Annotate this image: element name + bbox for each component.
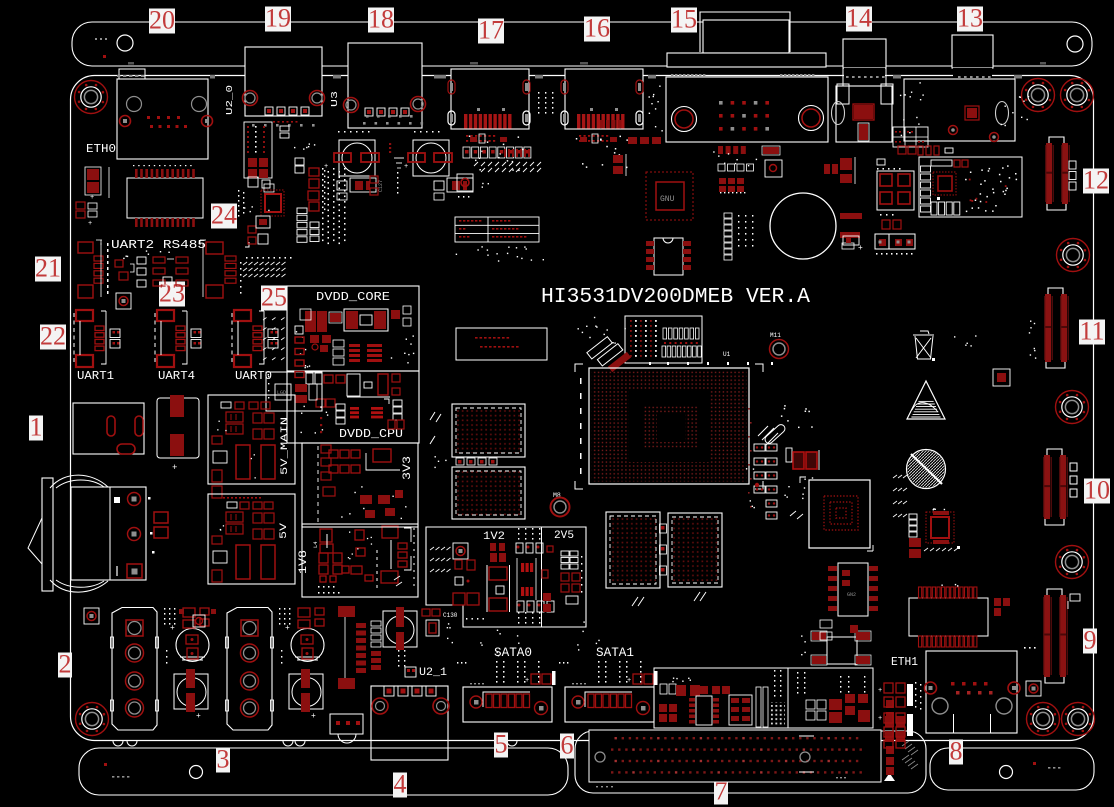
svg-text:3V3: 3V3 xyxy=(402,456,414,480)
svg-text:5V: 5V xyxy=(278,522,290,539)
svg-text:16: 16 xyxy=(584,14,610,43)
svg-text:+: + xyxy=(172,463,177,473)
svg-text:SATA1: SATA1 xyxy=(596,646,634,660)
svg-text:C127: C127 xyxy=(378,180,384,192)
svg-text:U1: U1 xyxy=(723,351,731,358)
svg-text:13: 13 xyxy=(957,4,983,33)
svg-text:+: + xyxy=(88,220,92,228)
svg-text:GN2: GN2 xyxy=(847,592,856,598)
svg-text:1V2: 1V2 xyxy=(483,531,505,543)
svg-text:+: + xyxy=(627,677,631,685)
svg-text:U2_0: U2_0 xyxy=(224,85,235,115)
svg-text:+: + xyxy=(525,677,529,685)
svg-text:ETH0: ETH0 xyxy=(86,142,116,156)
svg-text:UART4: UART4 xyxy=(158,369,195,383)
svg-text:ETH1: ETH1 xyxy=(891,655,918,669)
svg-text:+: + xyxy=(878,687,882,695)
svg-text:1V8: 1V8 xyxy=(298,550,310,574)
svg-text:2V5: 2V5 xyxy=(554,530,574,542)
svg-text:C130: C130 xyxy=(443,612,458,619)
svg-text:22: 22 xyxy=(40,322,66,351)
svg-text:3: 3 xyxy=(217,745,230,774)
svg-text:12: 12 xyxy=(1083,166,1109,195)
svg-text:21: 21 xyxy=(35,254,61,283)
svg-text:+: + xyxy=(285,624,290,633)
svg-text:20: 20 xyxy=(149,6,175,35)
svg-text:19: 19 xyxy=(265,4,291,33)
svg-text:6: 6 xyxy=(561,731,574,760)
svg-text:10: 10 xyxy=(1084,476,1110,505)
svg-text:HI3531DV200DMEB VER.A: HI3531DV200DMEB VER.A xyxy=(541,286,810,309)
svg-text:1: 1 xyxy=(30,413,43,442)
svg-text:2: 2 xyxy=(59,650,72,679)
svg-text:UART0: UART0 xyxy=(235,369,272,383)
svg-text:+: + xyxy=(196,712,201,721)
svg-text:+: + xyxy=(878,715,882,723)
svg-text:11: 11 xyxy=(1079,317,1104,346)
svg-text:24: 24 xyxy=(211,201,237,230)
svg-text:GNU: GNU xyxy=(660,195,675,204)
svg-text:15: 15 xyxy=(671,5,697,34)
svg-text:+: + xyxy=(311,712,316,721)
svg-text:+: + xyxy=(404,163,408,171)
svg-text:5: 5 xyxy=(495,730,508,759)
svg-text:+: + xyxy=(90,194,94,202)
svg-text:25: 25 xyxy=(261,283,287,312)
svg-text:M11: M11 xyxy=(770,332,781,339)
svg-text:UART2 RS485: UART2 RS485 xyxy=(111,238,206,252)
svg-text:U2_1: U2_1 xyxy=(419,667,447,679)
svg-text:18: 18 xyxy=(368,5,394,34)
svg-text:U3: U3 xyxy=(329,91,340,107)
svg-text:17: 17 xyxy=(478,16,504,45)
svg-text:UART1: UART1 xyxy=(77,369,114,383)
svg-text:+: + xyxy=(170,624,175,633)
svg-text:9: 9 xyxy=(1084,626,1097,655)
svg-text:8: 8 xyxy=(950,737,963,766)
svg-text:5V_MAIN: 5V_MAIN xyxy=(279,417,291,475)
svg-text:14: 14 xyxy=(846,4,872,33)
svg-text:L4: L4 xyxy=(312,541,319,548)
svg-text:SATA0: SATA0 xyxy=(494,646,532,660)
svg-text:4: 4 xyxy=(394,770,407,799)
svg-text:DVDD_CORE: DVDD_CORE xyxy=(316,290,390,304)
svg-text:+: + xyxy=(324,163,328,171)
